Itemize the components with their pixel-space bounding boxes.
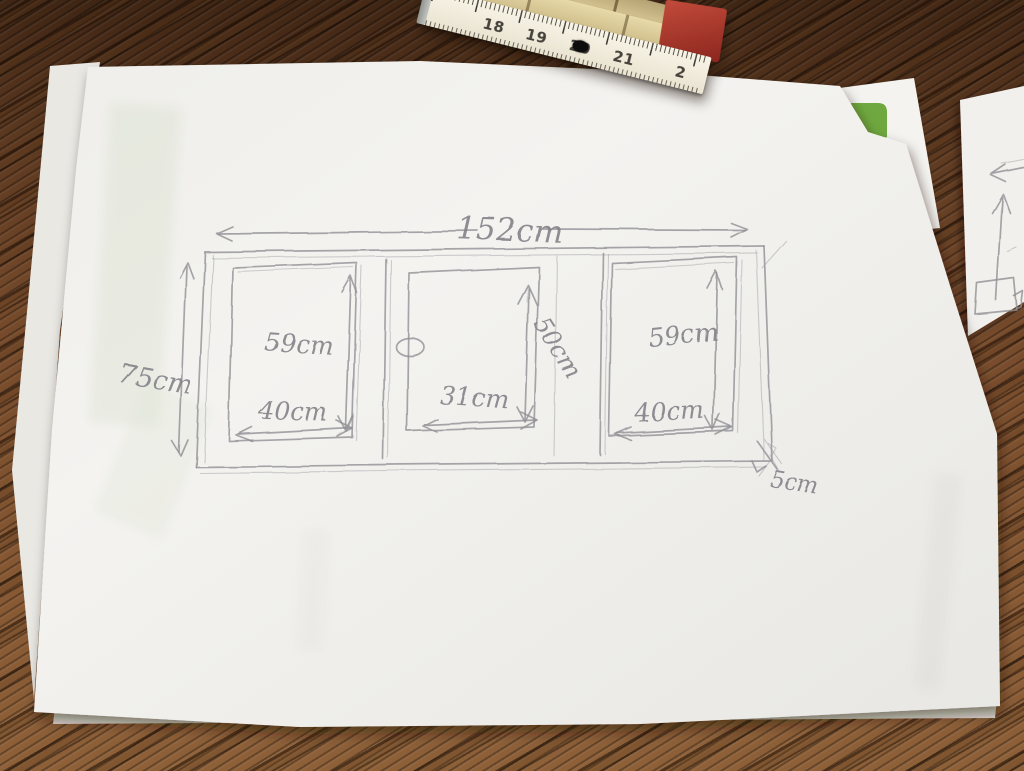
panel-left-height-label: 59cm: [263, 327, 334, 361]
ruler-number: 18: [481, 14, 507, 37]
ruler-number: 19: [524, 25, 550, 48]
panel-left-width-label: 40cm: [257, 396, 329, 427]
table-scene-svg: 152cm 75cm 59cm 40cm: [0, 0, 1024, 771]
total-width-label: 152cm: [457, 211, 564, 251]
ruler-number: 21: [611, 47, 637, 70]
panel-right-width-label: 40cm: [633, 395, 705, 428]
ruler-number: 2: [673, 62, 688, 82]
photo-scene: { "sketch": { "total_width_label": "152c…: [0, 0, 1024, 771]
right-note-paper: [960, 86, 1024, 336]
panel-middle-width-label: 31cm: [439, 381, 510, 415]
